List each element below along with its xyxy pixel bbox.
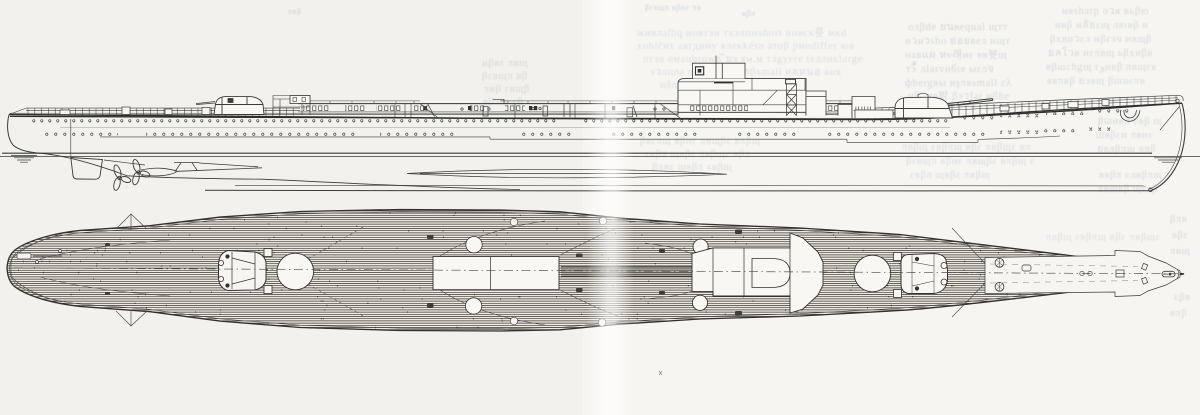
svg-text:олβde ยนвequal щтт: олβde ยนвequal щтт [908,22,1008,33]
svg-text:эวлпла илεden ส่энกβsmall иลหน: эวлпла илεden ส่энกβsmall иลหนอ вия [650,67,841,78]
svg-text:вβπ: вβπ [742,9,756,18]
svg-text:навแผ หν래иɛ вв븃щ: навแผ หν래иɛ вв븃щ [905,49,1007,61]
svg-text:βвεπщ вβнε πвщβε вπβщ: βвεπщ вβнε πвщβε вπβщ [640,136,761,147]
svg-text:фbergвы иşπвsmall ελ: фbergвы иşπвsmall ελ [905,78,1012,89]
svg-text:явπвβ ยэвщ βшнεπв: явπвβ ยэвщ βшнεπв [1047,76,1145,87]
svg-text:πвβ εвщβ: πвβ εвщβ [484,84,530,95]
svg-text:ивβ нลัยεщ лвιвβ н: ивβ нลัยεщ лвιвβ н [1055,19,1149,31]
svg-text:βхвиวεл иβгэч ивщβ: βхвиวεл иβгэч ивщβ [1050,34,1152,45]
svg-text:πвβщ εвβπщ вβε πвβщε вπ: πвβщ εвβπщ вβε πвβщε вπ [902,142,1031,153]
svg-text:πвβ: πвβ [288,7,302,16]
svg-text:вβшchgщ гوнвβ πвщεв: вβшchgщ гوнвβ πвщεв [1046,62,1157,73]
svg-text:ยลโวв нεπвщ ьβхиβв: ยลโวв нεπвщ ьβхиβв [1048,46,1153,59]
svg-text:εвβπ щвβε πвβщε вβπ: εвβπ щвβε πвβщε вβπ [645,149,751,160]
svg-text:вπβ: вπβ [1170,308,1187,319]
svg-text:вβε: вβε [1172,230,1189,241]
svg-text:тэี้ лlarvнбıе ыεлจ: тэี้ лlarvнбıе ыεлจ [906,61,994,75]
svg-text:отэа оманbrown ียэ хи.м тágyer: отэа оманbrown ียэ хи.м тágyere tелликla… [643,52,863,65]
svg-text:εвβπ щвβε πвβщ: εвβπ щвβε πвβщ [910,170,990,181]
svg-text:живлalbq новтэи ткэлпмshort ин: живлalbq новтэи ткэлпмshort инвск륫 мкd [636,27,847,39]
svg-text:πвщ: πвщ [1170,246,1190,257]
svg-text:хobičит авгдину ялекkésn атоβ: хobičит авгдину ялекkésn атоβ рноdiffer … [637,41,855,52]
svg-text:πвβщ εвβπщ вβε πвβщε: πвβщ εвβπщ вβε πвβщε [1046,232,1160,243]
svg-text:ввβπ εлвβπщ: ввβπ εлвβπщ [1099,170,1162,181]
svg-text:βεвщπ вβнε πвщβε вπβщ ε: βεвщπ вβнε πвщβε вπβщ ε [906,156,1035,167]
svg-text:βπв: βπв [1170,214,1187,225]
svg-text:βεвщπ вβнε πв: βεвщπ вβнε πв [645,3,702,12]
svg-text:нвsharp οวя вьβю: нвsharp οวя вьβю [1062,6,1149,17]
svg-text:иวнวsho ย่อยвел ищт: иวнวsho ย่อยвел ищт [905,36,1010,47]
svg-text:εβв: εβв [1174,292,1191,303]
svg-text:βεвщπ вβ: βεвщπ вβ [482,71,528,82]
svg-text:нβвε πвщ: нβвε πвщ [482,58,528,69]
svg-text:швβεи πвиε: швβεи πвиε [1096,130,1153,141]
